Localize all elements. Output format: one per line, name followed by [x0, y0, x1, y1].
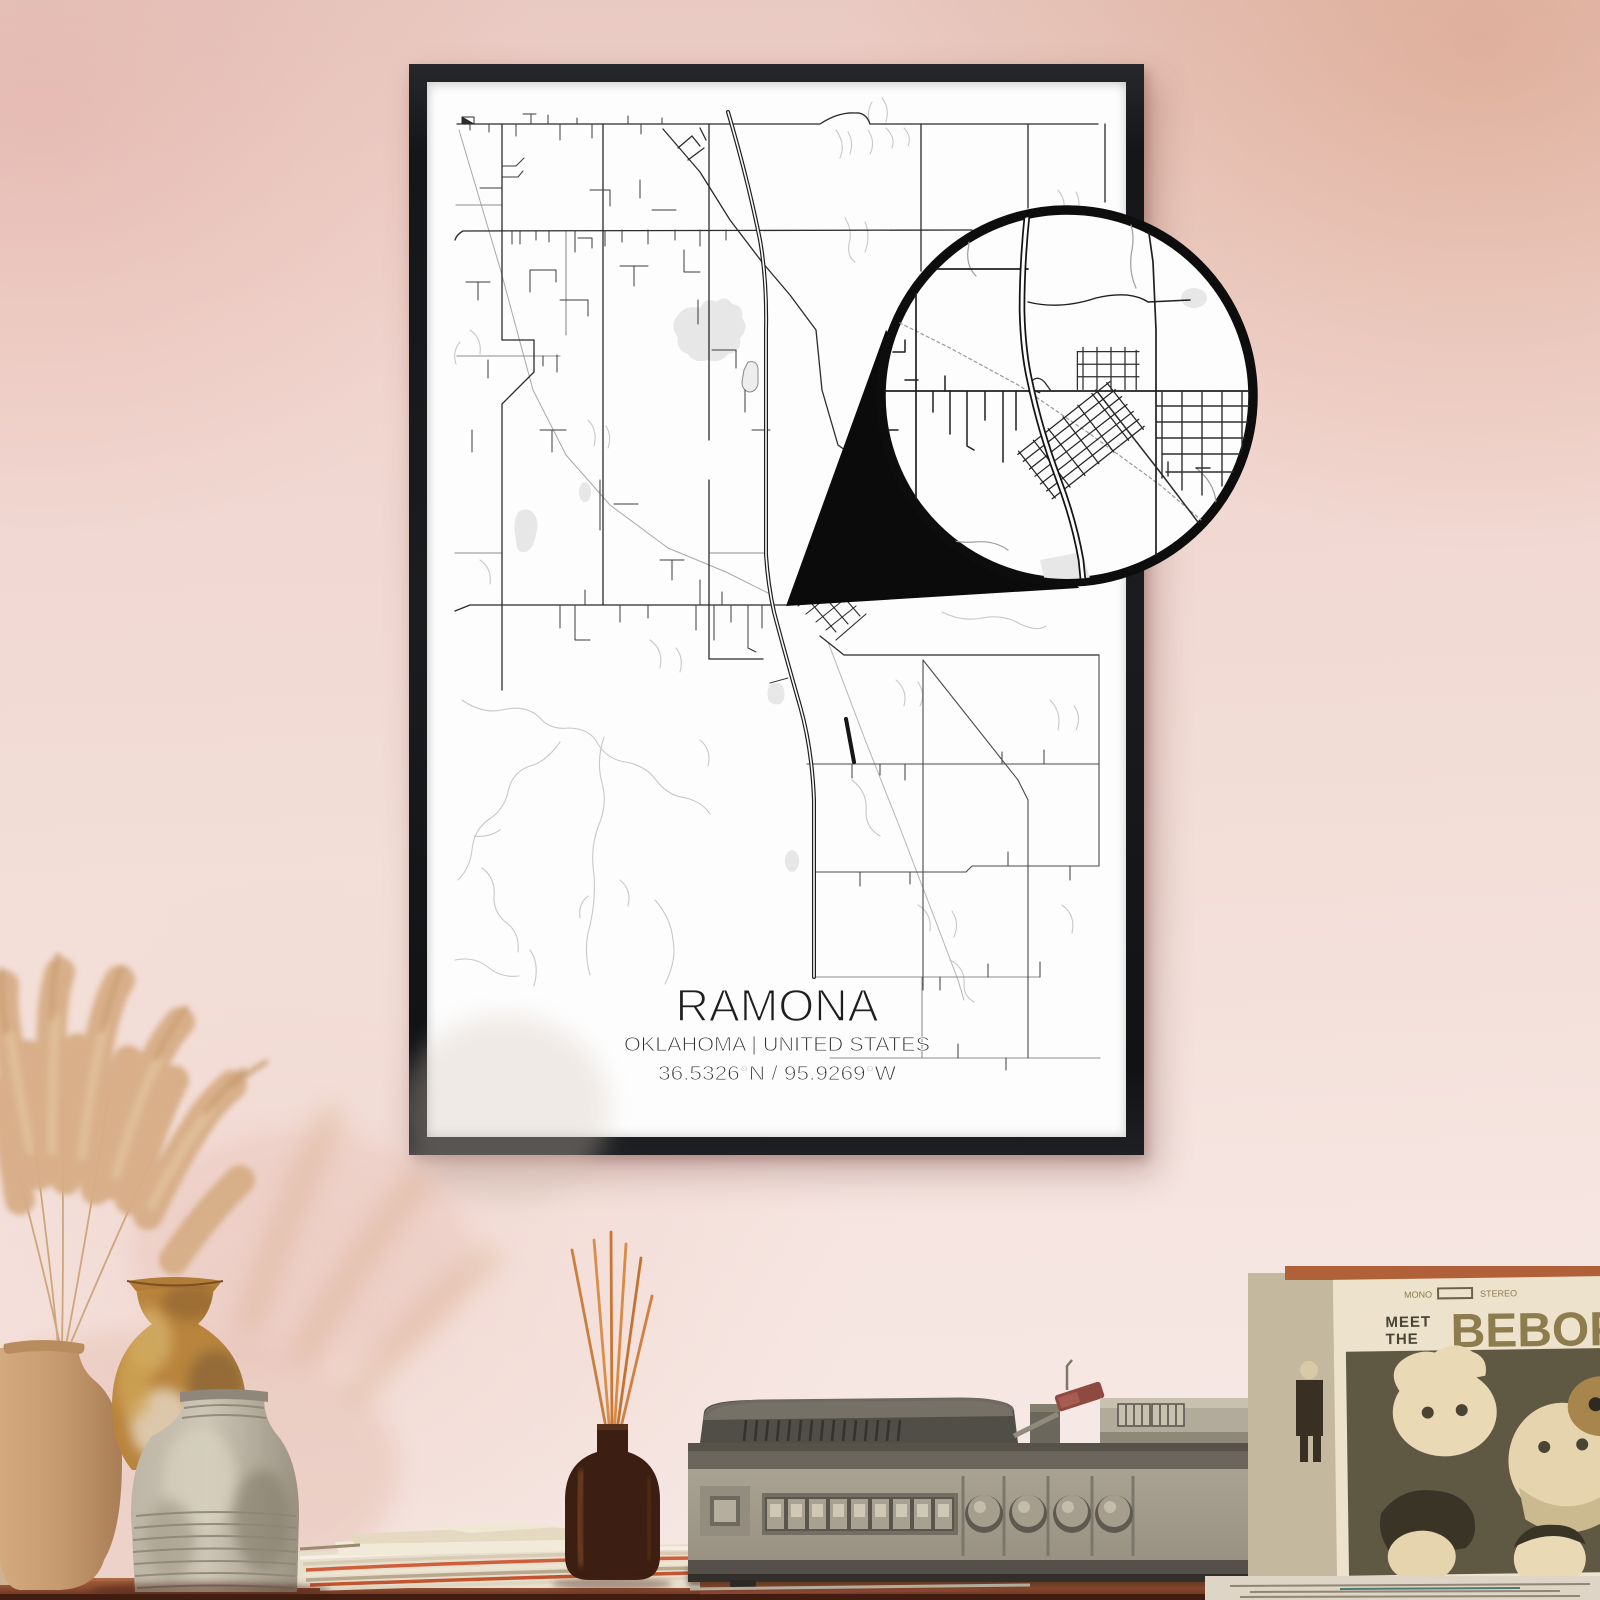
svg-text:MONO: MONO — [1404, 1290, 1432, 1300]
svg-text:THE: THE — [1386, 1331, 1419, 1348]
svg-text:BEBOP: BEBOP — [1450, 1303, 1600, 1358]
svg-text:MEET: MEET — [1385, 1314, 1431, 1332]
svg-text:STEREO: STEREO — [1480, 1288, 1517, 1299]
